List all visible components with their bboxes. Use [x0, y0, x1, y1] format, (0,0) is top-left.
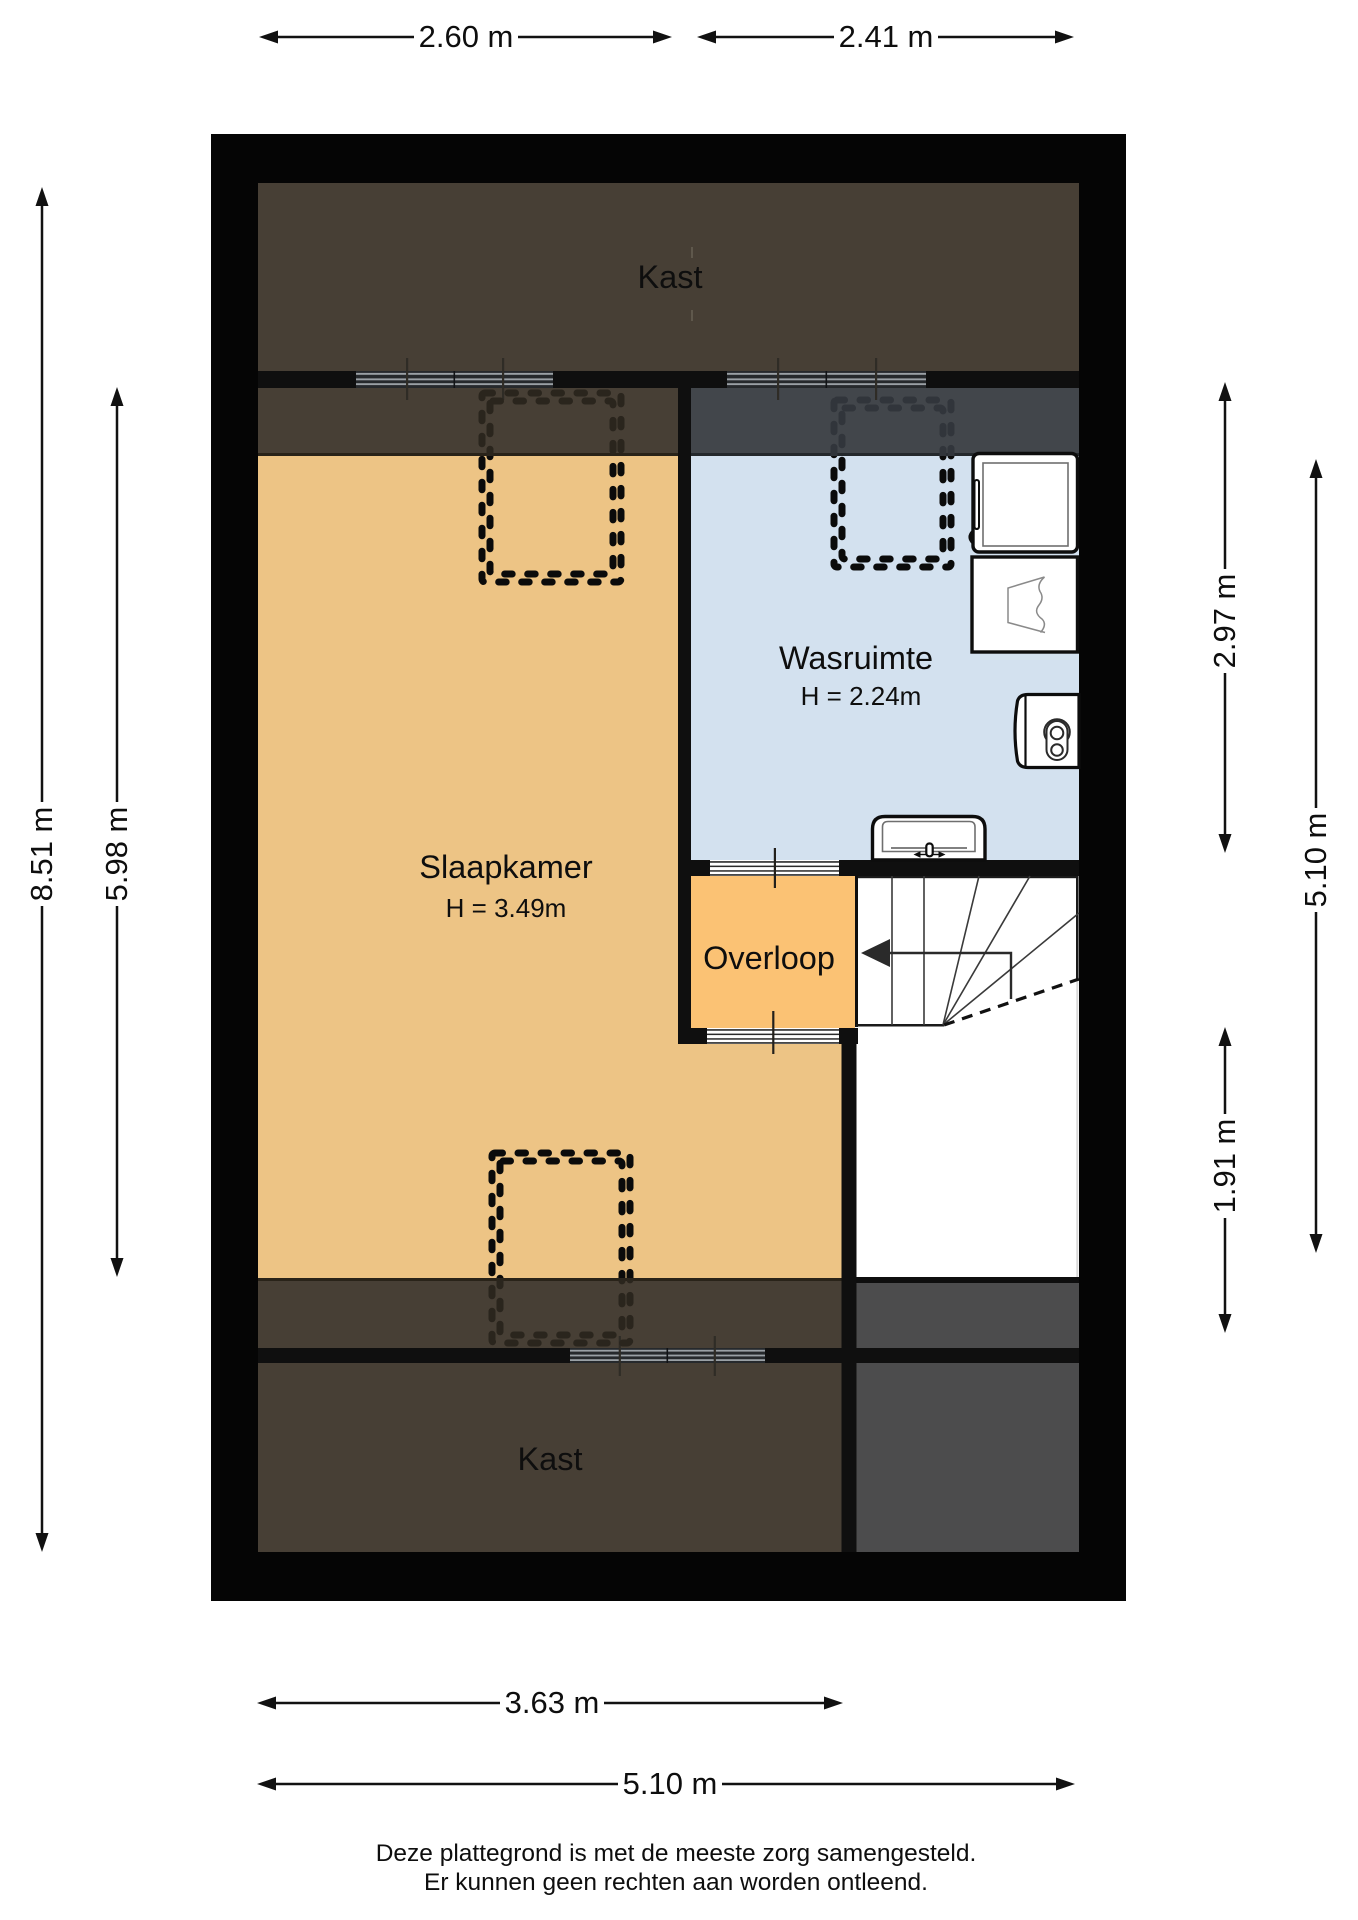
svg-text:Overloop: Overloop	[703, 940, 835, 976]
svg-text:H = 3.49m: H = 3.49m	[446, 893, 567, 923]
svg-text:Kast: Kast	[637, 259, 702, 295]
svg-text:Er kunnen geen rechten aan wor: Er kunnen geen rechten aan worden ontlee…	[424, 1869, 928, 1896]
svg-text:5.10 m: 5.10 m	[623, 1766, 718, 1801]
svg-text:Kast: Kast	[517, 1441, 582, 1477]
svg-text:2.60 m: 2.60 m	[419, 19, 514, 54]
svg-text:8.51 m: 8.51 m	[24, 807, 59, 902]
svg-text:5.10 m: 5.10 m	[1298, 813, 1333, 908]
svg-text:2.97 m: 2.97 m	[1207, 574, 1242, 669]
svg-text:H = 2.24m: H = 2.24m	[801, 681, 922, 711]
svg-text:Slaapkamer: Slaapkamer	[419, 849, 593, 885]
svg-text:2.41 m: 2.41 m	[839, 19, 934, 54]
svg-text:Deze plattegrond is met de mee: Deze plattegrond is met de meeste zorg s…	[376, 1840, 977, 1867]
svg-text:5.98 m: 5.98 m	[99, 807, 134, 902]
svg-text:3.63 m: 3.63 m	[505, 1685, 600, 1720]
svg-text:1.91 m: 1.91 m	[1207, 1119, 1242, 1214]
svg-text:Wasruimte: Wasruimte	[779, 640, 933, 676]
